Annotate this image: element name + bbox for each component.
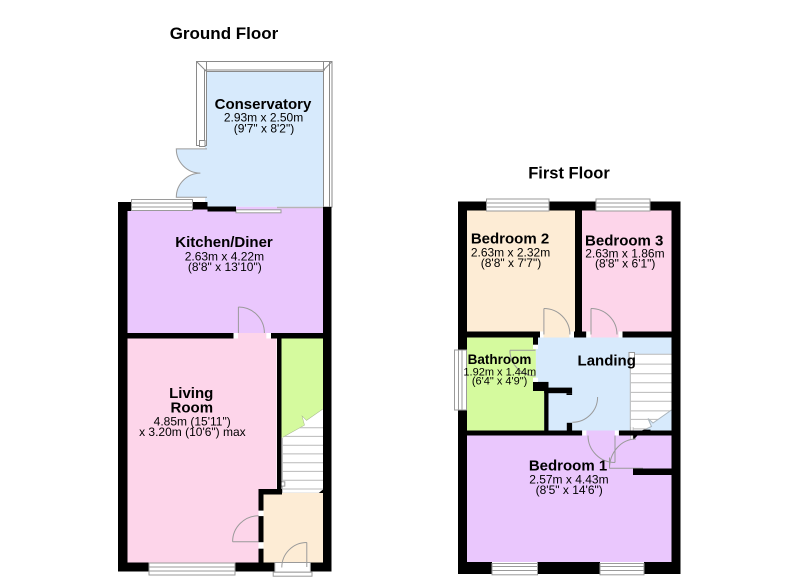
svg-text:(8'8" x 13'10"): (8'8" x 13'10") [188,260,262,274]
svg-text:(6'4" x 4'9"): (6'4" x 4'9") [472,375,527,387]
svg-text:(8'8" x 6'1"): (8'8" x 6'1") [595,257,655,271]
svg-text:Ground Floor: Ground Floor [170,24,279,43]
svg-text:(8'5" x 14'6"): (8'5" x 14'6") [536,483,603,497]
svg-text:Landing: Landing [578,353,636,370]
svg-text:(9'7" x 8'2"): (9'7" x 8'2") [234,122,294,136]
svg-text:(8'8" x 7'7"): (8'8" x 7'7") [481,256,541,270]
svg-text:Bathroom: Bathroom [468,352,532,367]
svg-text:First Floor: First Floor [528,165,610,183]
svg-text:x 3.20m (10'6") max: x 3.20m (10'6") max [139,425,246,439]
